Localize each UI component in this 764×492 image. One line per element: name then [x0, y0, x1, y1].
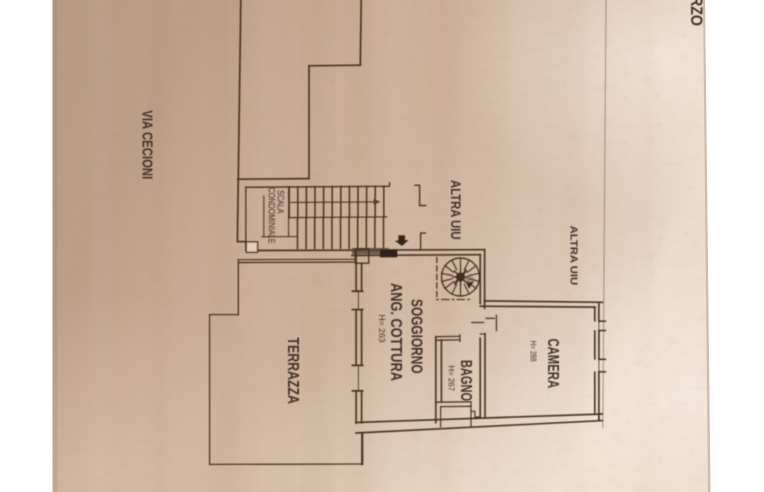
svg-text:SOGGIORNO: SOGGIORNO — [408, 299, 425, 374]
svg-text:ANG. COTTURA: ANG. COTTURA — [387, 283, 404, 381]
svg-text:BAGNO: BAGNO — [457, 360, 474, 401]
svg-text:H= 263: H= 263 — [377, 314, 387, 343]
svg-text:TERRAZZA: TERRAZZA — [284, 337, 301, 404]
svg-text:VIA CECIONI: VIA CECIONI — [138, 110, 155, 179]
svg-text:CAMERA: CAMERA — [544, 338, 561, 388]
svg-text:ALTRA UIU: ALTRA UIU — [568, 226, 579, 286]
svg-text:RZO: RZO — [687, 0, 705, 26]
svg-text:H= 288: H= 288 — [529, 341, 539, 362]
svg-text:CONDOMINIALE: CONDOMINIALE — [267, 187, 277, 243]
svg-text:ALTRA UIU: ALTRA UIU — [448, 180, 463, 240]
svg-text:H= 267: H= 267 — [446, 366, 456, 392]
